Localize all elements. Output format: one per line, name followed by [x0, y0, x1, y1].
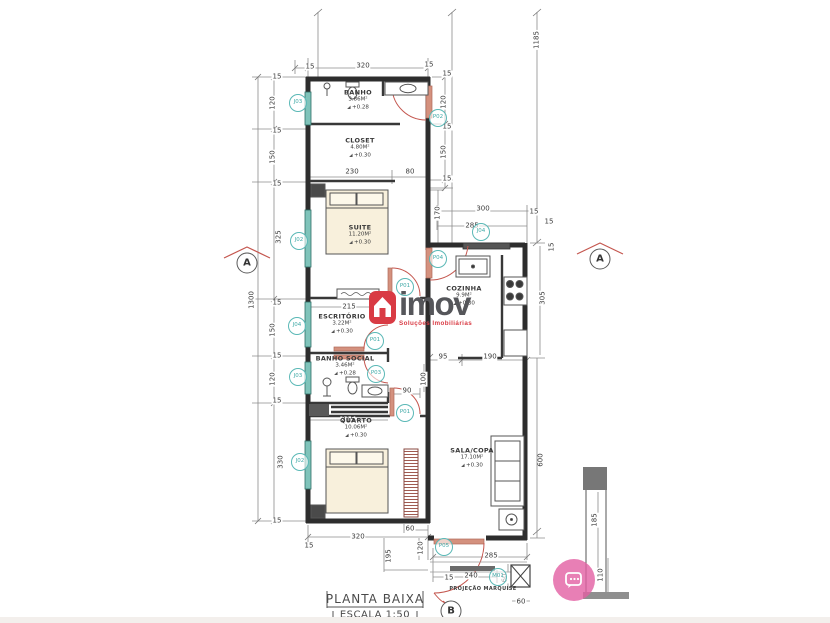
- dimension-label: 240: [463, 573, 478, 580]
- dimension-label: 120: [418, 540, 425, 555]
- room-label: ESCRITÓRIO3.22M²+0.30: [318, 313, 365, 336]
- dimension-label: 325: [276, 229, 283, 244]
- dimension-label: 150: [270, 149, 277, 164]
- chat-button[interactable]: [553, 559, 595, 601]
- dimension-label: 15: [272, 181, 283, 188]
- dimension-label: 215: [341, 304, 356, 311]
- dimension-label: 15: [272, 353, 283, 360]
- section-marker: A: [590, 249, 611, 270]
- door-window-tag: P02: [429, 109, 447, 127]
- annotation-note: PROJEÇÃO MARQUISE: [449, 586, 516, 592]
- dimension-label: 120: [270, 95, 277, 110]
- brand-tagline: Soluções Imobiliárias: [399, 320, 472, 327]
- door-window-tag: J02: [291, 453, 309, 471]
- door-window-tag: J04: [288, 317, 306, 335]
- house-icon: [369, 291, 396, 324]
- room-label: QUARTO10.06M²+0.30: [340, 417, 372, 440]
- door-window-tag: P01: [366, 332, 384, 350]
- dimension-label: 330: [278, 454, 285, 469]
- dimension-label: 150: [270, 322, 277, 337]
- dimension-label: 15: [442, 71, 453, 78]
- dimension-label: 15: [272, 398, 283, 405]
- dimension-label: 95: [438, 354, 449, 361]
- dimension-label: 15: [544, 219, 555, 226]
- dimension-label: 15: [272, 518, 283, 525]
- dimension-label: 80: [405, 169, 416, 176]
- room-label: SUITE11.20M²+0.30: [349, 224, 372, 247]
- dimension-label: 320: [350, 534, 365, 541]
- dimension-label: 110: [598, 567, 605, 582]
- dimension-label: 60: [516, 599, 527, 606]
- dimension-label: 150: [441, 144, 448, 159]
- door-window-tag: M01: [489, 568, 507, 586]
- dimension-label: 15: [424, 62, 435, 69]
- dimension-label: 170: [435, 205, 442, 220]
- dimension-label: 320: [355, 63, 370, 70]
- door-window-tag: P05: [435, 538, 453, 556]
- dimension-label: 1185: [534, 30, 541, 50]
- room-label: BANHO SOCIAL3.46M²+0.28: [316, 355, 375, 378]
- dimension-label: 15: [444, 575, 455, 582]
- dimension-label: 90: [402, 388, 413, 395]
- door-window-tag: J02: [290, 232, 308, 250]
- room-label: BANHO3.86M²+0.28: [344, 89, 372, 112]
- room-label: SALA/COPA17.10M²+0.30: [450, 447, 493, 470]
- dimension-label: 60: [405, 526, 416, 533]
- dimension-label: 15: [305, 64, 316, 71]
- watermark-logo: imov Soluções Imobiliárias: [369, 291, 472, 327]
- plan-title: PLANTA BAIXA: [326, 592, 424, 606]
- door-window-tag: P01: [396, 404, 414, 422]
- dimension-label: 15: [529, 209, 540, 216]
- dimension-label: 120: [441, 94, 448, 109]
- dimension-label: 15: [272, 128, 283, 135]
- dimension-label: 15: [549, 242, 556, 253]
- dimension-label: 15: [272, 300, 283, 307]
- room-label: CLOSET4.80M²+0.30: [345, 137, 375, 160]
- dimension-label: 190: [482, 354, 497, 361]
- door-window-tag: P04: [429, 250, 447, 268]
- dimension-label: 230: [344, 169, 359, 176]
- dimension-label: 195: [386, 548, 393, 563]
- door-window-tag: J03: [289, 94, 307, 112]
- dimension-label: 15: [442, 176, 453, 183]
- dimension-label: 100: [421, 371, 428, 386]
- dimension-label: 285: [483, 553, 498, 560]
- dimension-label: 15: [272, 74, 283, 81]
- dimension-label: 300: [475, 206, 490, 213]
- door-window-tag: J03: [289, 368, 307, 386]
- chat-icon: [564, 571, 584, 589]
- brand-name: imov: [399, 291, 472, 317]
- dimension-label: 185: [592, 512, 599, 527]
- dimension-label: 1300: [249, 290, 256, 310]
- dimension-label: 600: [538, 452, 545, 467]
- dimension-label: 15: [304, 543, 315, 550]
- section-marker: A: [237, 253, 258, 274]
- bottom-band: [0, 617, 830, 623]
- dimension-label: 120: [270, 371, 277, 386]
- door-window-tag: J04: [472, 223, 490, 241]
- floor-plan-page: 3201515118515120151501532513001515015120…: [0, 0, 830, 623]
- dimension-label: 305: [540, 290, 547, 305]
